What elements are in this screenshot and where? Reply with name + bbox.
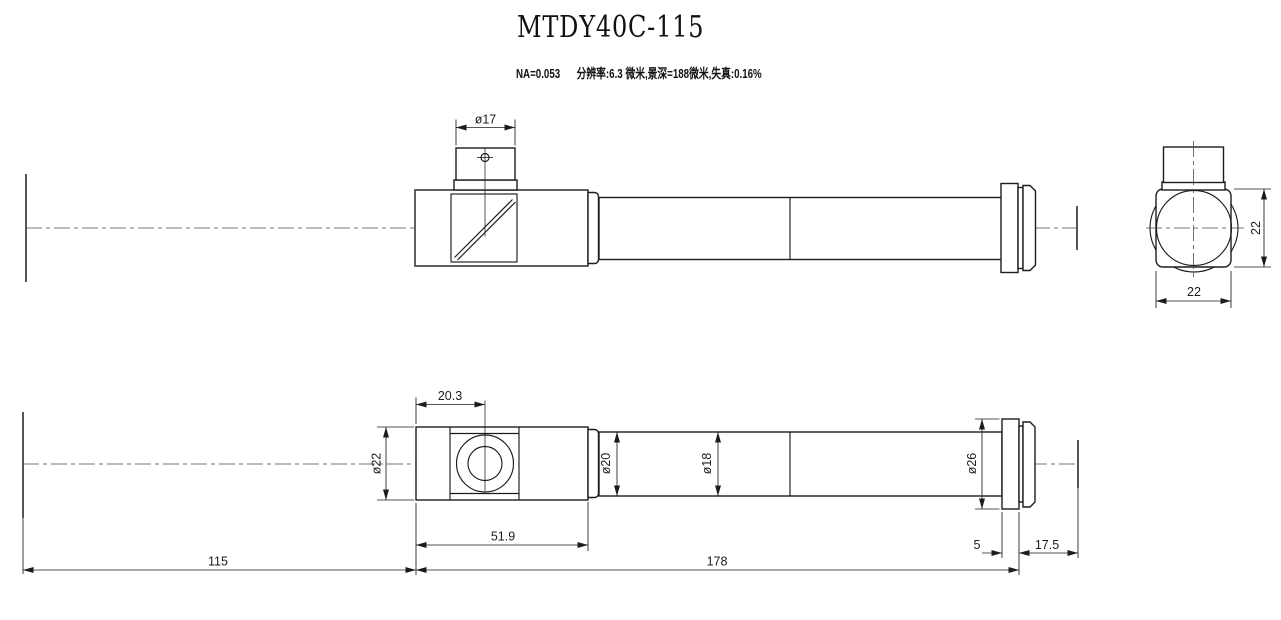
end-height-label: 22 [1249,221,1263,235]
retaining-cap [1023,186,1036,271]
body-collar-top [588,430,599,498]
flange-neck [1018,188,1023,269]
dim-port-diameter: ø17 [456,113,515,146]
dim-tube-diameter-label: ø18 [700,453,714,475]
prism-body-outline [415,190,588,266]
front-flange [1001,184,1018,273]
end-width-label: 22 [1187,285,1201,299]
dim-neck-diameter-label: ø20 [599,453,613,475]
body-collar [588,193,599,264]
dim-front-length-label: 178 [707,555,728,569]
end-view: 22 22 [1146,141,1271,308]
camera-port-base [454,180,517,190]
dim-front-length: 178 [416,555,1019,571]
top-view: 20.3 ø22 ø20 ø18 ø26 [23,389,1078,575]
camera-port [456,148,515,180]
dim-working-distance: 17.5 [1019,538,1078,553]
dim-flange-diameter-label: ø26 [965,453,979,475]
technical-drawing: ø17 22 22 [0,0,1281,620]
dim-body-diameter-label: ø22 [370,453,384,475]
side-view: ø17 [26,113,1077,283]
retaining-cap-top [1023,422,1035,507]
dim-flange-thickness: 5 [974,512,1019,575]
lens-tube-top [599,432,1002,496]
drawing-canvas: MTDY40C-115 NA=0.053分辨率:6.3 微米,景深=188微米,… [0,0,1281,620]
front-flange-top [1002,419,1019,509]
dim-port-diameter-label: ø17 [475,113,497,127]
dim-body-diameter: ø22 [370,427,415,500]
dim-flange-thickness-label: 5 [974,538,981,552]
lens-tube [599,198,1002,260]
dim-port-offset: 20.3 [416,389,485,424]
dim-rear-length: 115 [23,555,416,571]
dim-rear-length-label: 115 [208,555,228,569]
dim-body-length-label: 51.9 [491,530,515,544]
dim-working-distance-label: 17.5 [1035,538,1059,552]
dim-port-offset-label: 20.3 [438,389,462,403]
dim-body-length: 51.9 [416,502,588,551]
